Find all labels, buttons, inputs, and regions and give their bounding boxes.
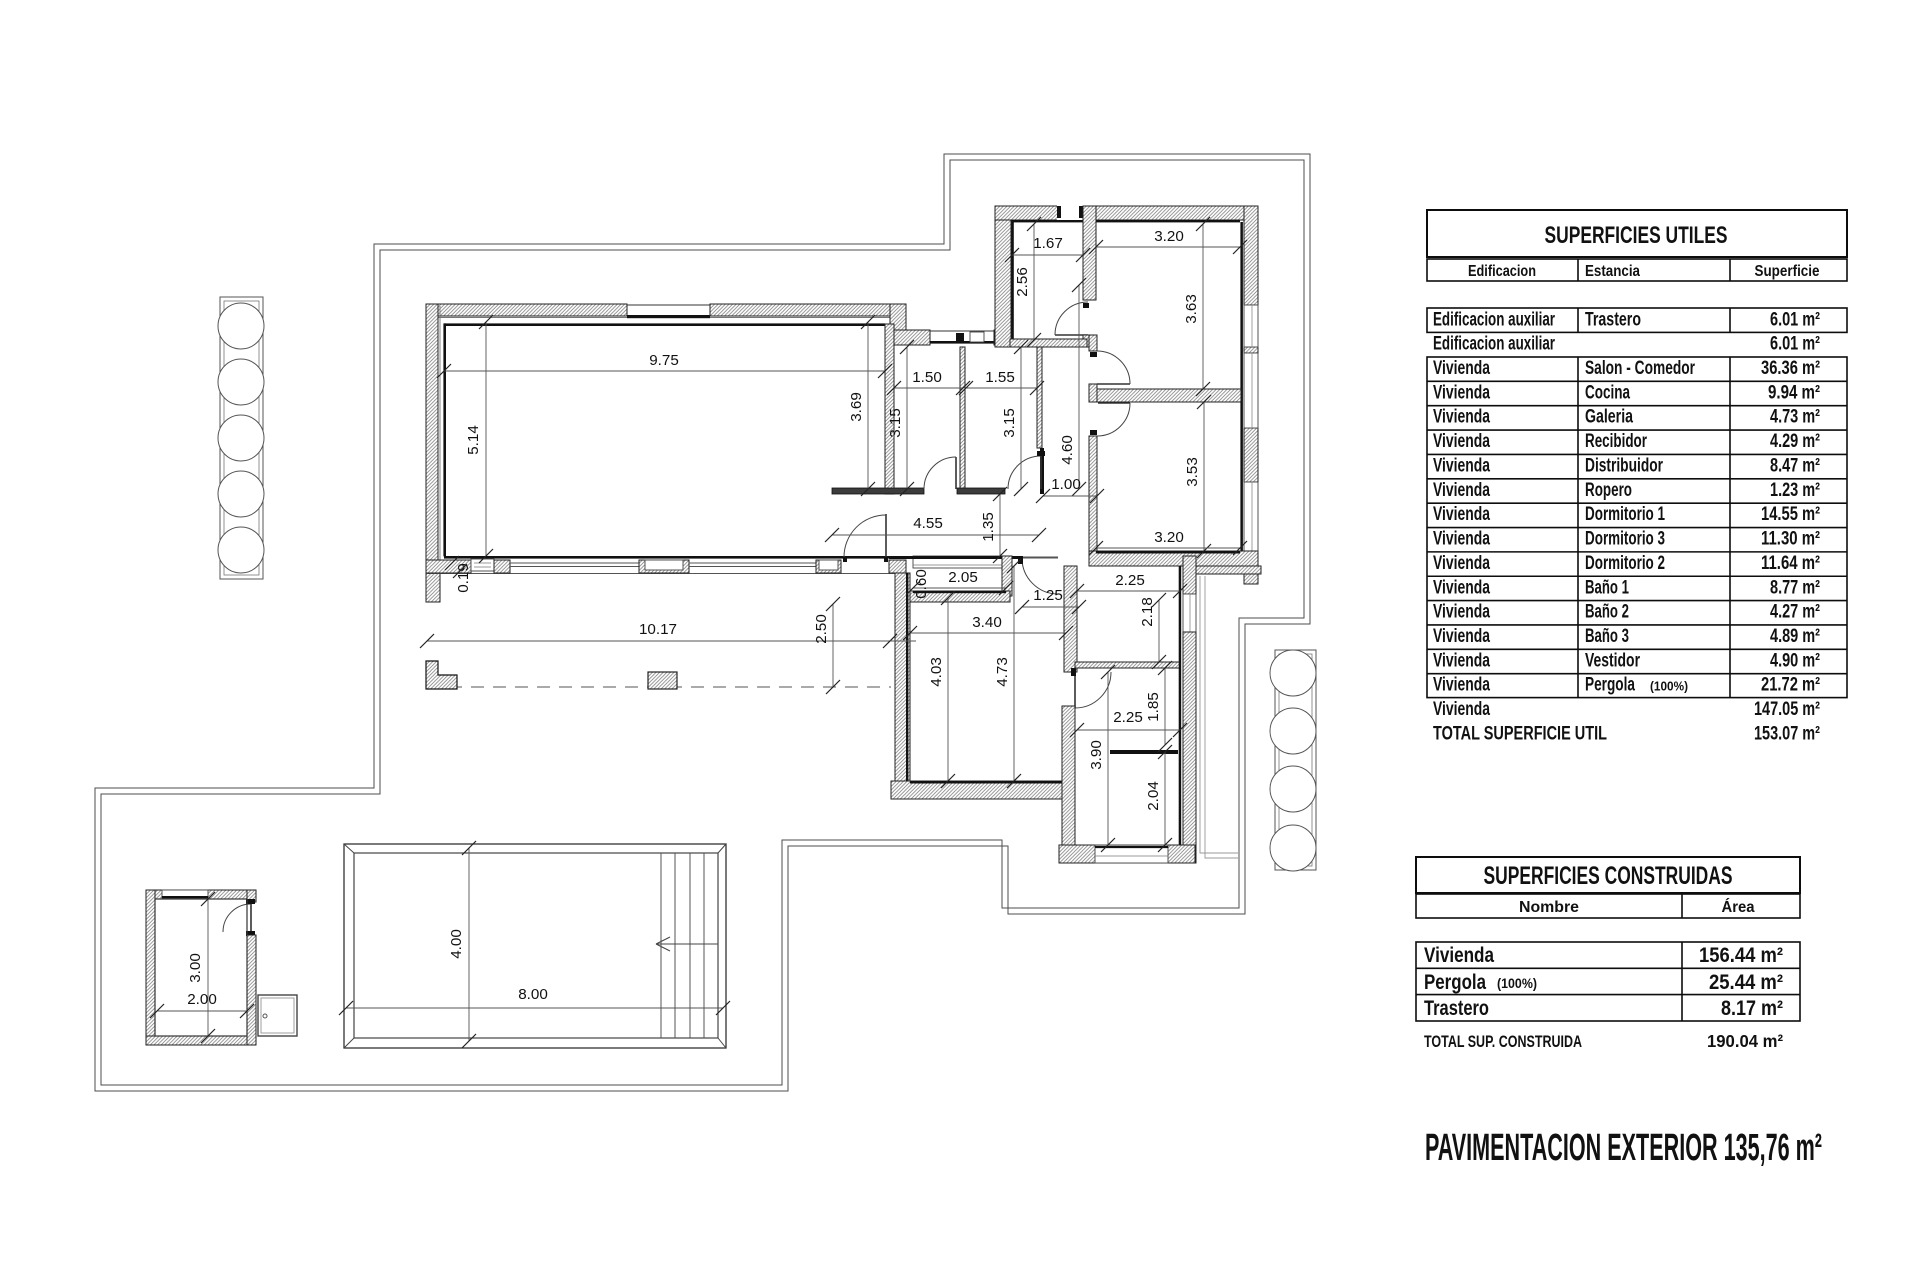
svg-text:Superficie: Superficie <box>1755 263 1820 280</box>
svg-text:21.72 m²: 21.72 m² <box>1761 675 1820 696</box>
svg-text:1.35: 1.35 <box>980 512 997 542</box>
svg-text:2.18: 2.18 <box>1139 597 1156 627</box>
svg-text:Estancia: Estancia <box>1585 263 1640 280</box>
svg-text:153.07 m²: 153.07 m² <box>1754 723 1820 744</box>
svg-text:PAVIMENTACION EXTERIOR 135,76: PAVIMENTACION EXTERIOR 135,76 m² <box>1425 1127 1822 1169</box>
svg-text:Vivienda: Vivienda <box>1433 358 1490 379</box>
svg-text:2.05: 2.05 <box>948 569 978 586</box>
svg-text:Baño 2: Baño 2 <box>1585 602 1629 623</box>
svg-text:Dormitorio 1: Dormitorio 1 <box>1585 504 1665 525</box>
svg-text:TOTAL SUP. CONSTRUIDA: TOTAL SUP. CONSTRUIDA <box>1424 1033 1582 1051</box>
svg-text:TOTAL SUPERFICIE UTIL: TOTAL SUPERFICIE UTIL <box>1433 723 1607 744</box>
svg-text:3.00: 3.00 <box>187 953 204 983</box>
svg-text:Trastero: Trastero <box>1424 997 1489 1020</box>
svg-text:Dormitorio 2: Dormitorio 2 <box>1585 553 1665 574</box>
svg-text:4.89 m²: 4.89 m² <box>1770 626 1820 647</box>
svg-text:Vivienda: Vivienda <box>1433 577 1490 598</box>
svg-text:156.44 m²: 156.44 m² <box>1699 944 1783 967</box>
svg-text:3.53: 3.53 <box>1184 457 1201 487</box>
svg-text:Baño 1: Baño 1 <box>1585 577 1629 598</box>
svg-text:1.00: 1.00 <box>1051 476 1081 493</box>
svg-text:190.04 m²: 190.04 m² <box>1707 1031 1783 1051</box>
svg-text:4.73: 4.73 <box>994 657 1011 687</box>
svg-text:Trastero: Trastero <box>1585 309 1641 330</box>
svg-text:8.47 m²: 8.47 m² <box>1770 455 1820 476</box>
svg-text:4.55: 4.55 <box>913 515 943 532</box>
svg-text:Ropero: Ropero <box>1585 480 1632 501</box>
svg-text:9.75: 9.75 <box>649 352 679 369</box>
svg-text:5.14: 5.14 <box>465 425 482 455</box>
svg-text:Dormitorio 3: Dormitorio 3 <box>1585 529 1665 550</box>
svg-text:14.55 m²: 14.55 m² <box>1761 504 1820 525</box>
svg-text:3.20: 3.20 <box>1154 228 1184 245</box>
svg-text:2.04: 2.04 <box>1145 781 1162 811</box>
svg-text:3.69: 3.69 <box>848 392 865 422</box>
svg-text:6.01 m²: 6.01 m² <box>1770 309 1820 330</box>
svg-text:8.00: 8.00 <box>518 986 548 1003</box>
svg-text:Vivienda: Vivienda <box>1433 602 1490 623</box>
svg-text:Edificacion auxiliar: Edificacion auxiliar <box>1433 334 1555 355</box>
svg-text:147.05 m²: 147.05 m² <box>1754 699 1820 720</box>
svg-text:25.44 m²: 25.44 m² <box>1709 971 1783 994</box>
svg-text:SUPERFICIES UTILES: SUPERFICIES UTILES <box>1545 222 1728 249</box>
svg-text:Pergola: Pergola <box>1585 675 1635 696</box>
svg-text:Vivienda: Vivienda <box>1433 504 1490 525</box>
svg-text:11.30 m²: 11.30 m² <box>1761 529 1820 550</box>
svg-text:SUPERFICIES CONSTRUIDAS: SUPERFICIES CONSTRUIDAS <box>1484 862 1733 890</box>
svg-text:1.25: 1.25 <box>1033 587 1063 604</box>
svg-text:Vivienda: Vivienda <box>1433 553 1490 574</box>
svg-text:4.29 m²: 4.29 m² <box>1770 431 1820 452</box>
svg-text:3.15: 3.15 <box>1001 408 1018 438</box>
svg-text:Vivienda: Vivienda <box>1433 675 1490 696</box>
svg-text:1.50: 1.50 <box>912 369 942 386</box>
svg-text:Vivienda: Vivienda <box>1433 626 1490 647</box>
svg-text:2.56: 2.56 <box>1014 267 1031 297</box>
svg-text:Pergola: Pergola <box>1424 971 1486 994</box>
svg-text:Baño 3: Baño 3 <box>1585 626 1629 647</box>
svg-text:1.23 m²: 1.23 m² <box>1770 480 1820 501</box>
svg-text:3.15: 3.15 <box>887 408 904 438</box>
svg-text:4.90 m²: 4.90 m² <box>1770 650 1820 671</box>
svg-text:1.55: 1.55 <box>985 369 1015 386</box>
svg-text:Vestidor: Vestidor <box>1585 650 1640 671</box>
svg-text:4.73 m²: 4.73 m² <box>1770 407 1820 428</box>
svg-text:8.17 m²: 8.17 m² <box>1721 997 1783 1020</box>
svg-text:(100%): (100%) <box>1650 679 1688 694</box>
svg-text:Cocina: Cocina <box>1585 382 1630 403</box>
svg-text:2.25: 2.25 <box>1113 709 1143 726</box>
svg-text:Área: Área <box>1722 897 1755 916</box>
svg-text:Edificacion: Edificacion <box>1468 263 1536 280</box>
svg-text:2.00: 2.00 <box>187 991 217 1008</box>
svg-text:1.85: 1.85 <box>1145 692 1162 722</box>
svg-text:4.00: 4.00 <box>448 929 465 959</box>
svg-text:3.90: 3.90 <box>1088 740 1105 770</box>
svg-text:Vivienda: Vivienda <box>1433 650 1490 671</box>
svg-text:2.50: 2.50 <box>813 614 830 644</box>
svg-text:8.77 m²: 8.77 m² <box>1770 577 1820 598</box>
svg-text:Vivienda: Vivienda <box>1433 480 1490 501</box>
svg-text:0.60: 0.60 <box>913 569 930 599</box>
svg-text:3.63: 3.63 <box>1183 294 1200 324</box>
svg-text:Edificacion auxiliar: Edificacion auxiliar <box>1433 309 1555 330</box>
svg-text:10.17: 10.17 <box>639 621 677 638</box>
svg-text:Galeria: Galeria <box>1585 407 1633 428</box>
svg-text:9.94 m²: 9.94 m² <box>1768 382 1820 403</box>
svg-text:4.27 m²: 4.27 m² <box>1770 602 1820 623</box>
svg-text:Vivienda: Vivienda <box>1424 944 1494 967</box>
svg-text:4.60: 4.60 <box>1059 435 1076 465</box>
svg-text:1.67: 1.67 <box>1033 235 1063 252</box>
svg-text:6.01 m²: 6.01 m² <box>1770 334 1820 355</box>
svg-text:Vivienda: Vivienda <box>1433 431 1490 452</box>
svg-text:2.25: 2.25 <box>1115 572 1145 589</box>
svg-text:(100%): (100%) <box>1497 975 1537 991</box>
svg-text:4.03: 4.03 <box>928 657 945 687</box>
svg-text:3.20: 3.20 <box>1154 529 1184 546</box>
svg-text:Vivienda: Vivienda <box>1433 382 1490 403</box>
svg-text:Distribuidor: Distribuidor <box>1585 455 1663 476</box>
svg-text:Recibidor: Recibidor <box>1585 431 1647 452</box>
svg-text:Nombre: Nombre <box>1519 899 1579 916</box>
svg-text:Vivienda: Vivienda <box>1433 529 1490 550</box>
svg-text:Vivienda: Vivienda <box>1433 407 1490 428</box>
svg-text:Vivienda: Vivienda <box>1433 455 1490 476</box>
svg-text:11.64 m²: 11.64 m² <box>1761 553 1820 574</box>
svg-text:36.36 m²: 36.36 m² <box>1761 358 1820 379</box>
svg-text:Vivienda: Vivienda <box>1433 699 1490 720</box>
svg-text:3.40: 3.40 <box>972 614 1002 631</box>
svg-text:Salon - Comedor: Salon - Comedor <box>1585 358 1695 379</box>
